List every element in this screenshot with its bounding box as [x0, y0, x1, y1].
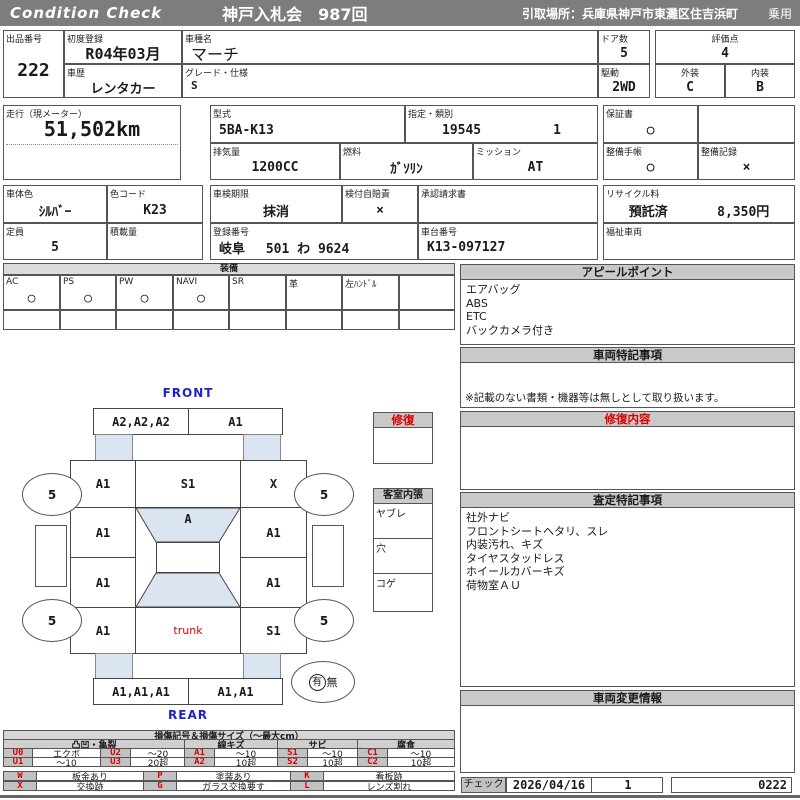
- trunk: trunk: [135, 607, 241, 654]
- registration-no-cell: 登録番号 岐阜 501 わ 9624: [210, 223, 418, 260]
- left-front-door: A1: [70, 507, 136, 558]
- check-count: 1: [591, 778, 664, 792]
- assessment-line: フロントシートヘタリ、スレ: [466, 525, 789, 539]
- left-rear-door: A1: [70, 557, 136, 608]
- legend-mark-code: P: [143, 771, 177, 781]
- check-code: 0222: [671, 777, 792, 793]
- equipment-cell-leather: 革: [286, 275, 342, 310]
- repair-flag-title: 修復: [374, 413, 432, 428]
- appeal-line: バックカメラ付き: [466, 324, 789, 338]
- equipment-empty-cell: [342, 310, 399, 330]
- recycle-fee: 8,350円: [717, 201, 769, 220]
- legend-code: A2: [184, 757, 215, 767]
- legend-mark-desc: 塗装あり: [176, 771, 291, 781]
- transmission-cell: ミッション AT: [473, 143, 598, 180]
- legend-size: 10超: [387, 757, 455, 767]
- check-label: チェック: [461, 777, 506, 793]
- legend-mark-code: X: [3, 781, 37, 791]
- equipment-cell-pw: PW○: [116, 275, 173, 310]
- equipment-empty-cell: [286, 310, 342, 330]
- mileage-divider: [6, 144, 178, 145]
- legend-code: U3: [100, 757, 131, 767]
- equipment-cell-navi: NAVI○: [173, 275, 229, 310]
- history-cell: 車歴 レンタカー: [64, 64, 182, 98]
- assessment-line: タイヤスタッドレス: [466, 552, 789, 566]
- equipment-cell-blank: [399, 275, 455, 310]
- appeal-line: エアバッグ: [466, 283, 789, 297]
- drive-cell: 駆動 2WD: [598, 64, 650, 98]
- vehicle-notes-disclaimer: ※記載のない書類・機器等は無しとして取り扱います。: [465, 390, 724, 405]
- legend-mark-desc: 板金あり: [36, 771, 144, 781]
- brand-logo: Condition Check: [0, 4, 162, 22]
- equipment-empty-cell: [229, 310, 286, 330]
- cabin-row-tear: ヤブレ: [374, 504, 432, 539]
- cabin-row-hole: 穴: [374, 539, 432, 574]
- mileage-cell: 走行（現メーター） 51,502km: [3, 105, 181, 180]
- change-info-panel: 車両変更情報: [460, 690, 795, 773]
- interior-grade-cell: 内装 B: [725, 64, 795, 98]
- equipment-empty-cell: [60, 310, 116, 330]
- check-date-box: 2026/04/16 1: [506, 777, 663, 793]
- rear-glass-shape: [135, 572, 241, 608]
- legend-mark-desc: 交換跡: [36, 781, 144, 791]
- bottom-divider: [0, 795, 800, 798]
- assessment-notes-title: 査定特記事項: [461, 493, 794, 508]
- lot-number-value: 222: [4, 43, 63, 97]
- cabin-row-burn: コゲ: [374, 574, 432, 611]
- right-sill: [312, 525, 344, 587]
- equipment-empty-cell: [173, 310, 229, 330]
- approval-cell: 承認請求書: [418, 185, 598, 223]
- warranty-blank-cell: [698, 105, 795, 143]
- legend-size: 10超: [307, 757, 358, 767]
- roof: [156, 542, 220, 573]
- rear-label: REAR: [135, 708, 241, 722]
- right-rear-door: A1: [240, 557, 307, 608]
- legend-size: ～10: [32, 757, 101, 767]
- appeal-points-title: アピールポイント: [461, 265, 794, 280]
- legend-mark-code: K: [290, 771, 324, 781]
- maintenance-record-cell: 整備記録 ×: [698, 143, 795, 180]
- legend-code: C2: [357, 757, 388, 767]
- equipment-empty-cell: [3, 310, 60, 330]
- model-code-cell: 型式 5BA-K13: [210, 105, 405, 143]
- warranty-cell: 保証書 ○: [603, 105, 698, 143]
- exterior-grade-cell: 外装 C: [655, 64, 725, 98]
- vehicle-type: 乗用: [768, 5, 800, 22]
- equipment-empty-cell: [116, 310, 173, 330]
- recycle-fee-cell: リサイクル料 預託済 8,350円: [603, 185, 795, 223]
- tire-rear-right: 5: [294, 599, 354, 642]
- equipment-cell-ps: PS○: [60, 275, 116, 310]
- right-front-door: A1: [240, 507, 307, 558]
- legend-mark-code: L: [290, 781, 324, 791]
- front-bumper-right: A1: [188, 408, 283, 435]
- repair-details-panel: 修復内容: [460, 411, 795, 490]
- legend-mark-code: W: [3, 771, 37, 781]
- maintenance-book-cell: 整備手帳 ○: [603, 143, 698, 180]
- windshield-code: A: [135, 512, 241, 526]
- repair-flag-box: 修復: [373, 412, 433, 464]
- inspection-cell: 車検期限 抹消: [210, 185, 342, 223]
- tire-front-right: 5: [294, 473, 354, 516]
- cabin-lining-box: 客室内張 ヤブレ 穴 コゲ: [373, 488, 433, 612]
- legend-code: S2: [277, 757, 308, 767]
- tire-rear-left: 5: [22, 599, 82, 642]
- assessment-line: 荷物室ＡＵ: [466, 579, 789, 593]
- fuel-cell: 燃料 ｶﾞｿﾘﾝ: [340, 143, 473, 180]
- appeal-line: ETC: [466, 310, 789, 324]
- change-info-title: 車両変更情報: [461, 691, 794, 706]
- lot-number-cell: 出品番号 222: [3, 30, 64, 98]
- rear-bumper-right: A1,A1: [188, 678, 283, 705]
- equipment-empty-cell: [399, 310, 455, 330]
- class-no2: 1: [553, 123, 561, 138]
- pickup-location: 引取場所：兵庫県神戸市東灘区住吉浜町: [522, 5, 768, 22]
- auction-condition-sheet: Condition Check 神戸入札会 987回 引取場所：兵庫県神戸市東灘…: [0, 0, 800, 800]
- cabin-lining-title: 客室内張: [374, 489, 432, 504]
- vehicle-notes-title: 車両特記事項: [461, 348, 794, 363]
- tire-front-left: 5: [22, 473, 82, 516]
- chassis-no-cell: 車台番号 K13-097127: [418, 223, 598, 260]
- front-left-corner: [95, 434, 133, 461]
- welfare-cell: 福祉車両: [603, 223, 795, 260]
- repair-details-title: 修復内容: [461, 412, 794, 427]
- vehicle-notes-panel: 車両特記事項 ※記載のない書類・機器等は無しとして取り扱います。: [460, 347, 795, 408]
- equipment-cell-ac: AC○: [3, 275, 60, 310]
- rear-bumper-left: A1,A1,A1: [93, 678, 189, 705]
- body-color-cell: 車体色 ｼﾙﾊﾞｰ: [3, 185, 107, 223]
- spare-yes-circled: 有: [309, 674, 326, 691]
- legend-size: 10超: [214, 757, 278, 767]
- check-date: 2026/04/16: [507, 778, 591, 792]
- header-bar: Condition Check 神戸入札会 987回 引取場所：兵庫県神戸市東灘…: [0, 0, 800, 26]
- first-registration-cell: 初度登録 R04年03月: [64, 30, 182, 64]
- rear-left-corner: [95, 653, 133, 679]
- spare-tire-indicator: 有 無: [291, 661, 355, 703]
- appeal-points-panel: アピールポイント エアバッグ ABS ETC バックカメラ付き: [460, 264, 795, 345]
- front-right-corner: [243, 434, 281, 461]
- grade-cell: グレード・仕様 S: [182, 64, 598, 98]
- score-cell: 評価点 4: [655, 30, 795, 64]
- front-label: FRONT: [135, 386, 241, 400]
- assessment-line: ホイールカバーキズ: [466, 565, 789, 579]
- legend-size: 20超: [130, 757, 186, 767]
- legend-code: U1: [3, 757, 33, 767]
- equipment-title: 装備: [3, 263, 455, 275]
- legend-mark-desc: レンズ割れ: [323, 781, 455, 791]
- rear-right-corner: [243, 653, 281, 679]
- assessment-notes-panel: 査定特記事項 社外ナビ フロントシートヘタリ、スレ 内装汚れ、キズ タイヤスタッ…: [460, 492, 795, 687]
- model-name-cell: 車種名 マーチ: [182, 30, 598, 64]
- doors-cell: ドア数 5: [598, 30, 650, 64]
- load-cell: 積載量: [107, 223, 203, 260]
- insurance-cell: 検付自賠責 ×: [342, 185, 418, 223]
- equipment-cell-sr: SR: [229, 275, 286, 310]
- legend-mark-code: G: [143, 781, 177, 791]
- color-code-cell: 色コード K23: [107, 185, 203, 223]
- displacement-cell: 排気量 1200CC: [210, 143, 340, 180]
- class-no: 19545: [442, 123, 481, 138]
- class-cell: 指定・類別 19545 1: [405, 105, 598, 143]
- appeal-line: ABS: [466, 297, 789, 311]
- capacity-cell: 定員 5: [3, 223, 107, 260]
- legend-mark-desc: ガラス交換要す: [176, 781, 291, 791]
- equipment-cell-lhd: 左ﾊﾝﾄﾞﾙ: [342, 275, 399, 310]
- assessment-line: 内装汚れ、キズ: [466, 538, 789, 552]
- auction-title: 神戸入札会 987回: [162, 1, 367, 25]
- spare-no: 無: [327, 674, 338, 690]
- assessment-line: 社外ナビ: [466, 511, 789, 525]
- hood: S1: [135, 460, 241, 508]
- recycle-status: 預託済: [629, 201, 668, 220]
- legend-mark-desc: 看板跡: [323, 771, 455, 781]
- front-bumper-left: A2,A2,A2: [93, 408, 189, 435]
- left-sill: [35, 525, 67, 587]
